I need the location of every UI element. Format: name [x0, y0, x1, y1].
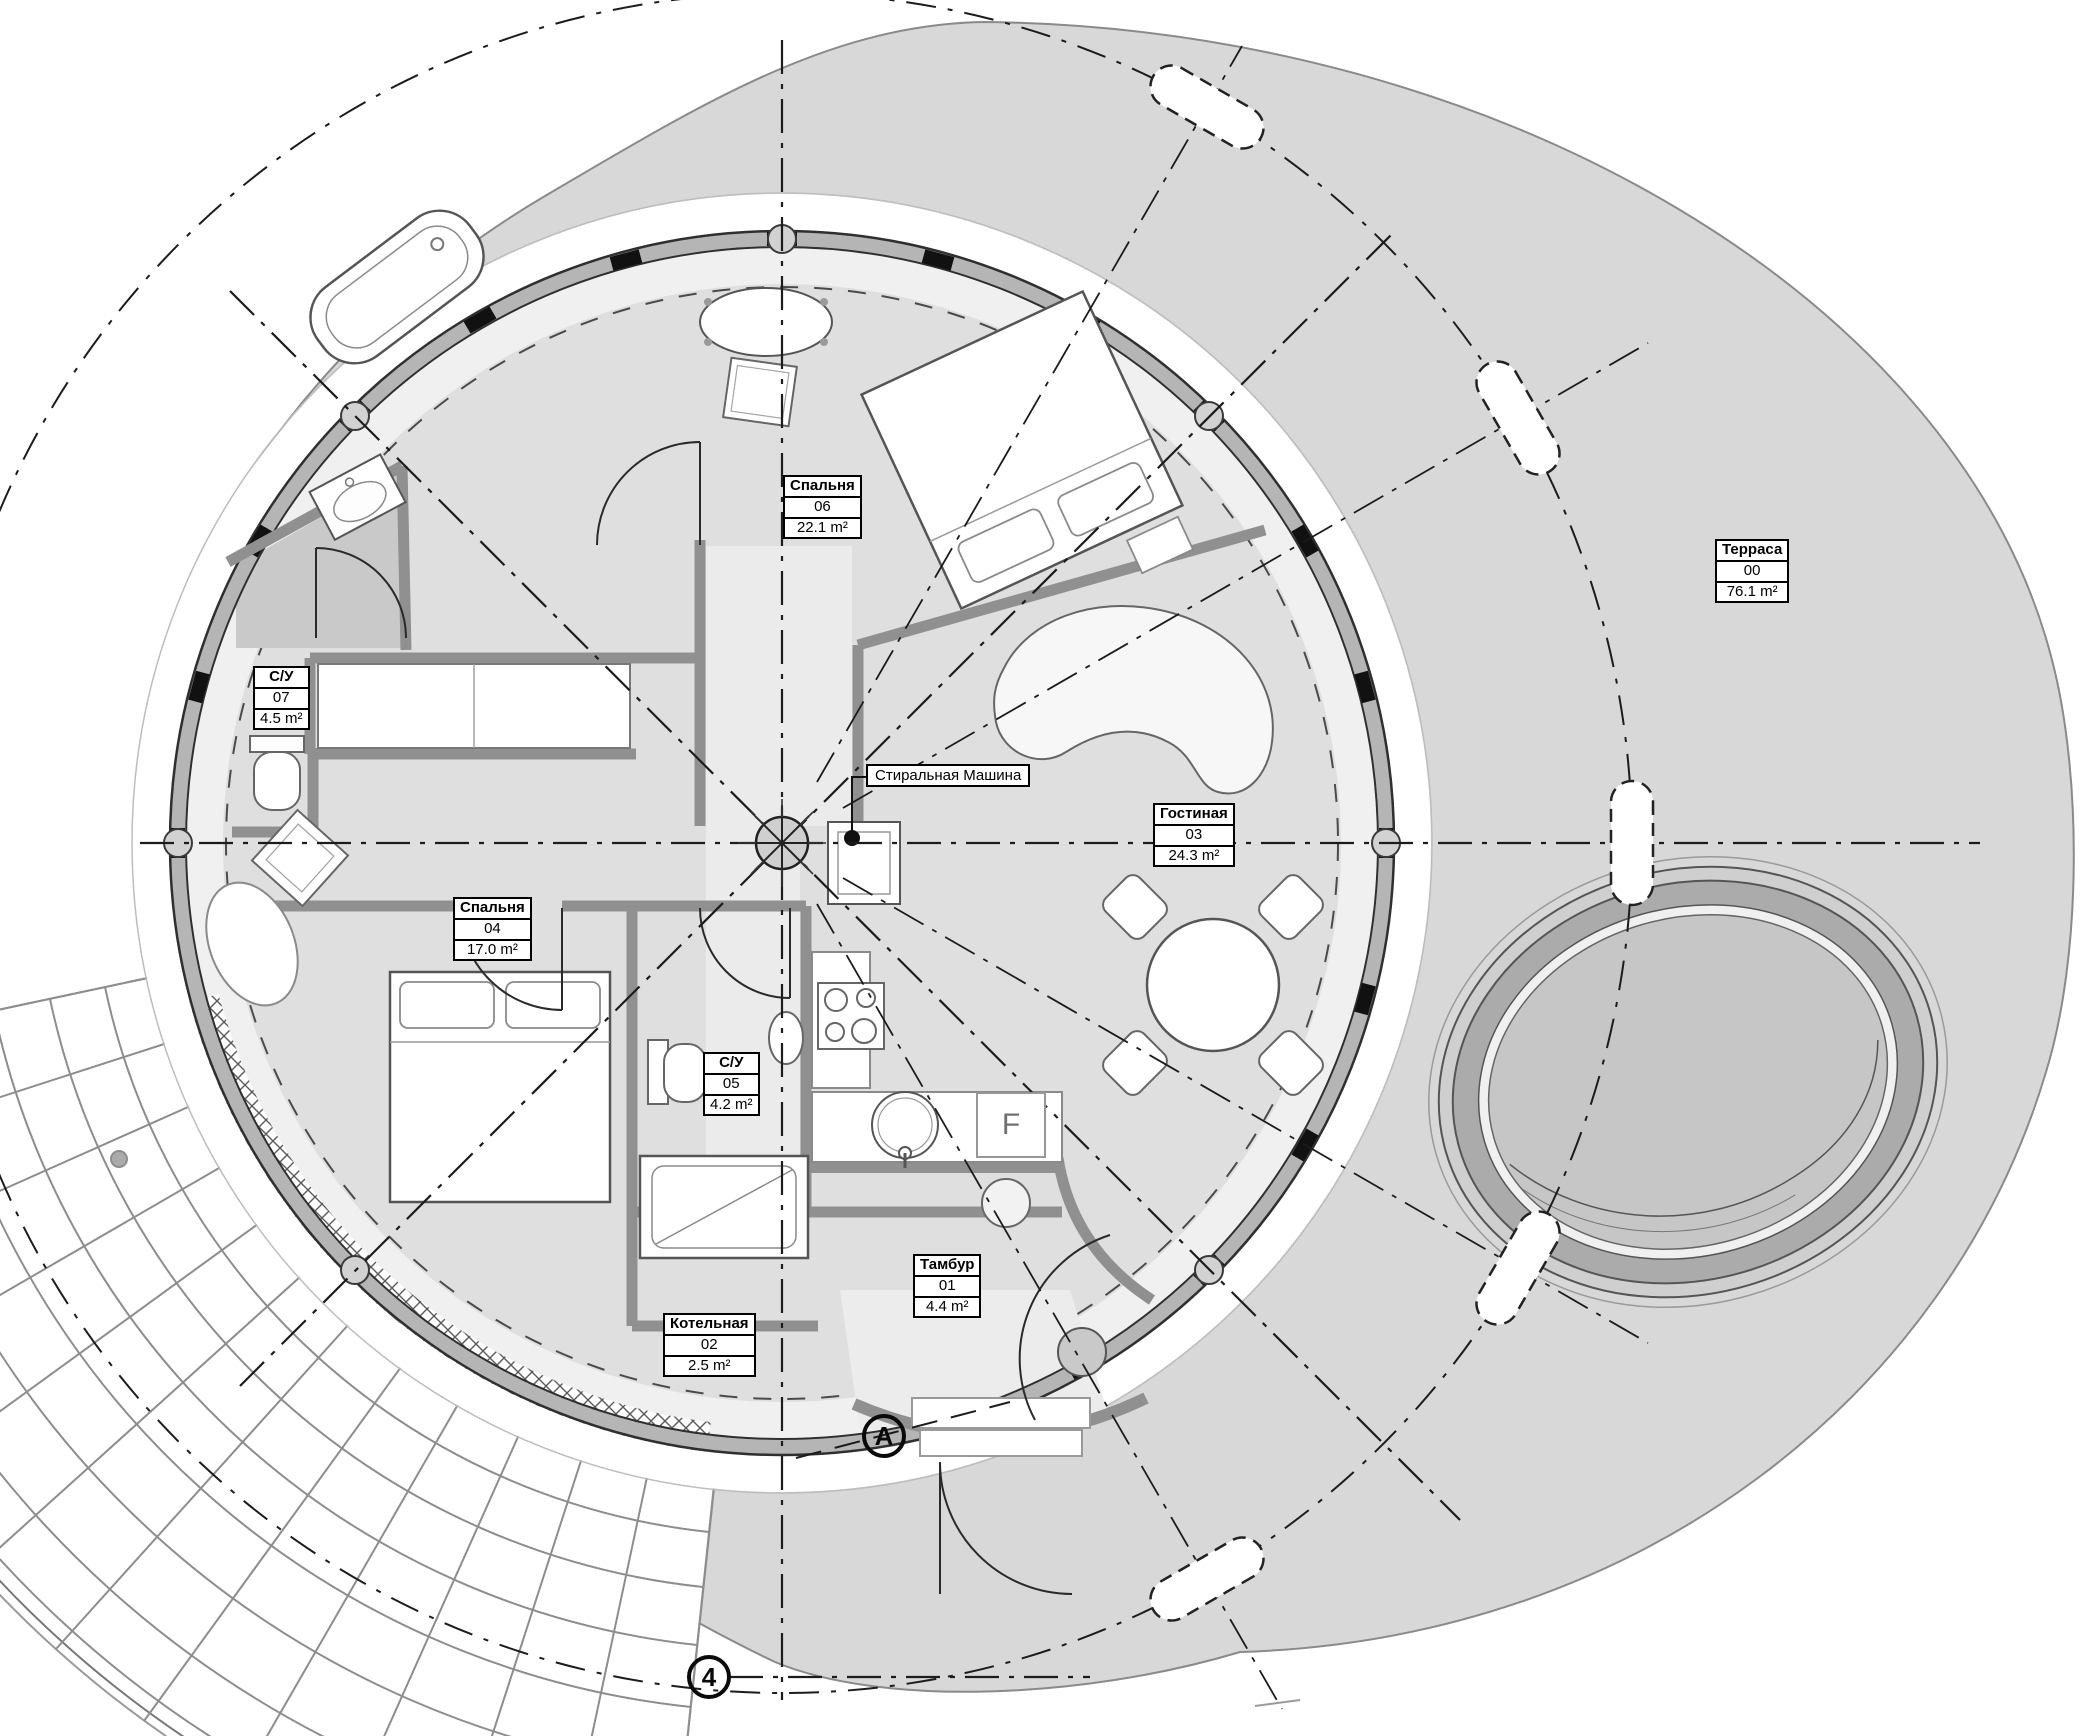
room-number: 04: [455, 920, 530, 941]
toilet-icon: [648, 1040, 706, 1104]
room-name: С/У: [705, 1054, 758, 1075]
room-label-su-07: С/У 07 4.5 m²: [253, 666, 310, 730]
room-number: 01: [915, 1277, 979, 1298]
room-area: 17.0 m²: [455, 941, 530, 960]
room-area: 4.5 m²: [255, 710, 308, 729]
room-name: Терраса: [1717, 541, 1787, 562]
railing-post-icon: [111, 1151, 127, 1167]
room-label-living: Гостиная 03 24.3 m²: [1153, 803, 1235, 867]
room-number: 03: [1155, 826, 1233, 847]
toilet-icon: [250, 736, 304, 810]
room-number: 02: [665, 1336, 754, 1357]
floor-plan-drawing: [0, 0, 2100, 1736]
room-name: Гостиная: [1155, 805, 1233, 826]
room-label-bedroom-06: Спальня 06 22.1 m²: [783, 475, 862, 539]
room-label-boiler: Котельная 02 2.5 m²: [663, 1313, 756, 1377]
room-label-bedroom-04: Спальня 04 17.0 m²: [453, 897, 532, 961]
room-area: 2.5 m²: [665, 1357, 754, 1376]
axis-marker-a: A: [862, 1414, 906, 1458]
room-area: 4.2 m²: [705, 1096, 758, 1115]
room-label-terrace: Терраса 00 76.1 m²: [1715, 539, 1789, 603]
floor-plan-page: Терраса 00 76.1 m² Тамбур 01 4.4 m² Коте…: [0, 0, 2100, 1736]
kitchen-stove-icon: [818, 983, 884, 1049]
room-area: 24.3 m²: [1155, 847, 1233, 866]
table-icon: [700, 288, 832, 356]
entrance-steps: [912, 1398, 1090, 1456]
room-label-su-05: С/У 05 4.2 m²: [703, 1052, 760, 1116]
washing-machine-icon: [828, 822, 900, 904]
room-number: 05: [705, 1075, 758, 1096]
room-name: С/У: [255, 668, 308, 689]
stool-icon: [723, 358, 797, 427]
room-number: 00: [1717, 562, 1787, 583]
room-name: Спальня: [785, 477, 860, 498]
bathroom-sink-icon: [769, 1012, 803, 1064]
room-name: Тамбур: [915, 1256, 979, 1277]
stool-icon: [982, 1179, 1030, 1227]
washing-machine-callout: Стиральная Машина: [866, 764, 1030, 787]
room-number: 07: [255, 689, 308, 710]
bed-icon: [390, 972, 610, 1202]
room-label-tambur: Тамбур 01 4.4 m²: [913, 1254, 981, 1318]
room-area: 76.1 m²: [1717, 583, 1787, 602]
room-area: 4.4 m²: [915, 1298, 979, 1317]
room-name: Спальня: [455, 899, 530, 920]
room-number: 06: [785, 498, 860, 519]
center-column-icon: [738, 799, 826, 887]
axis-marker-4: 4: [687, 1655, 731, 1699]
fridge-label: F: [976, 1092, 1046, 1158]
detail-tick: [1255, 1700, 1300, 1706]
room-area: 22.1 m²: [785, 519, 860, 538]
room-name: Котельная: [665, 1315, 754, 1336]
